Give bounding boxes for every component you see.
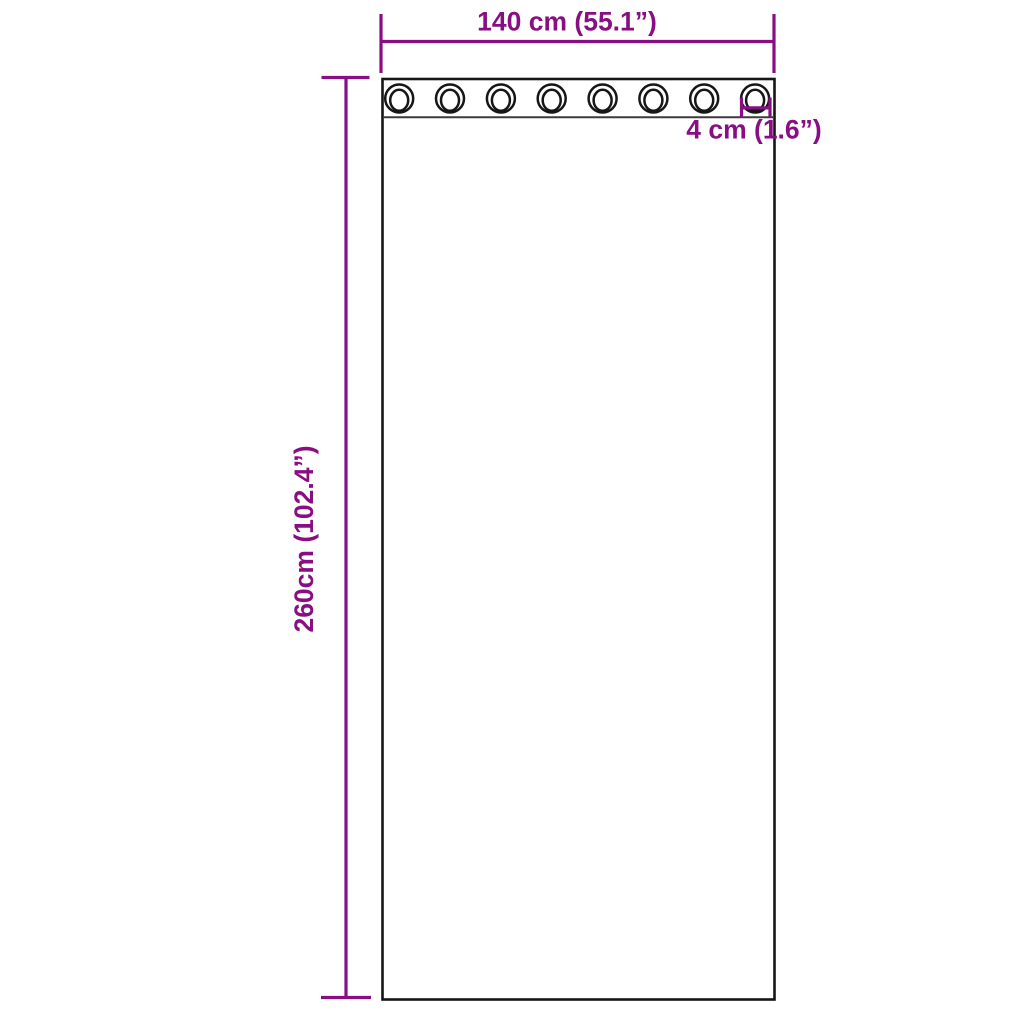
svg-text:140 cm (55.1”): 140 cm (55.1”) bbox=[477, 7, 657, 37]
svg-text:260cm (102.4”): 260cm (102.4”) bbox=[289, 445, 319, 632]
svg-text:4 cm (1.6”): 4 cm (1.6”) bbox=[686, 115, 822, 145]
